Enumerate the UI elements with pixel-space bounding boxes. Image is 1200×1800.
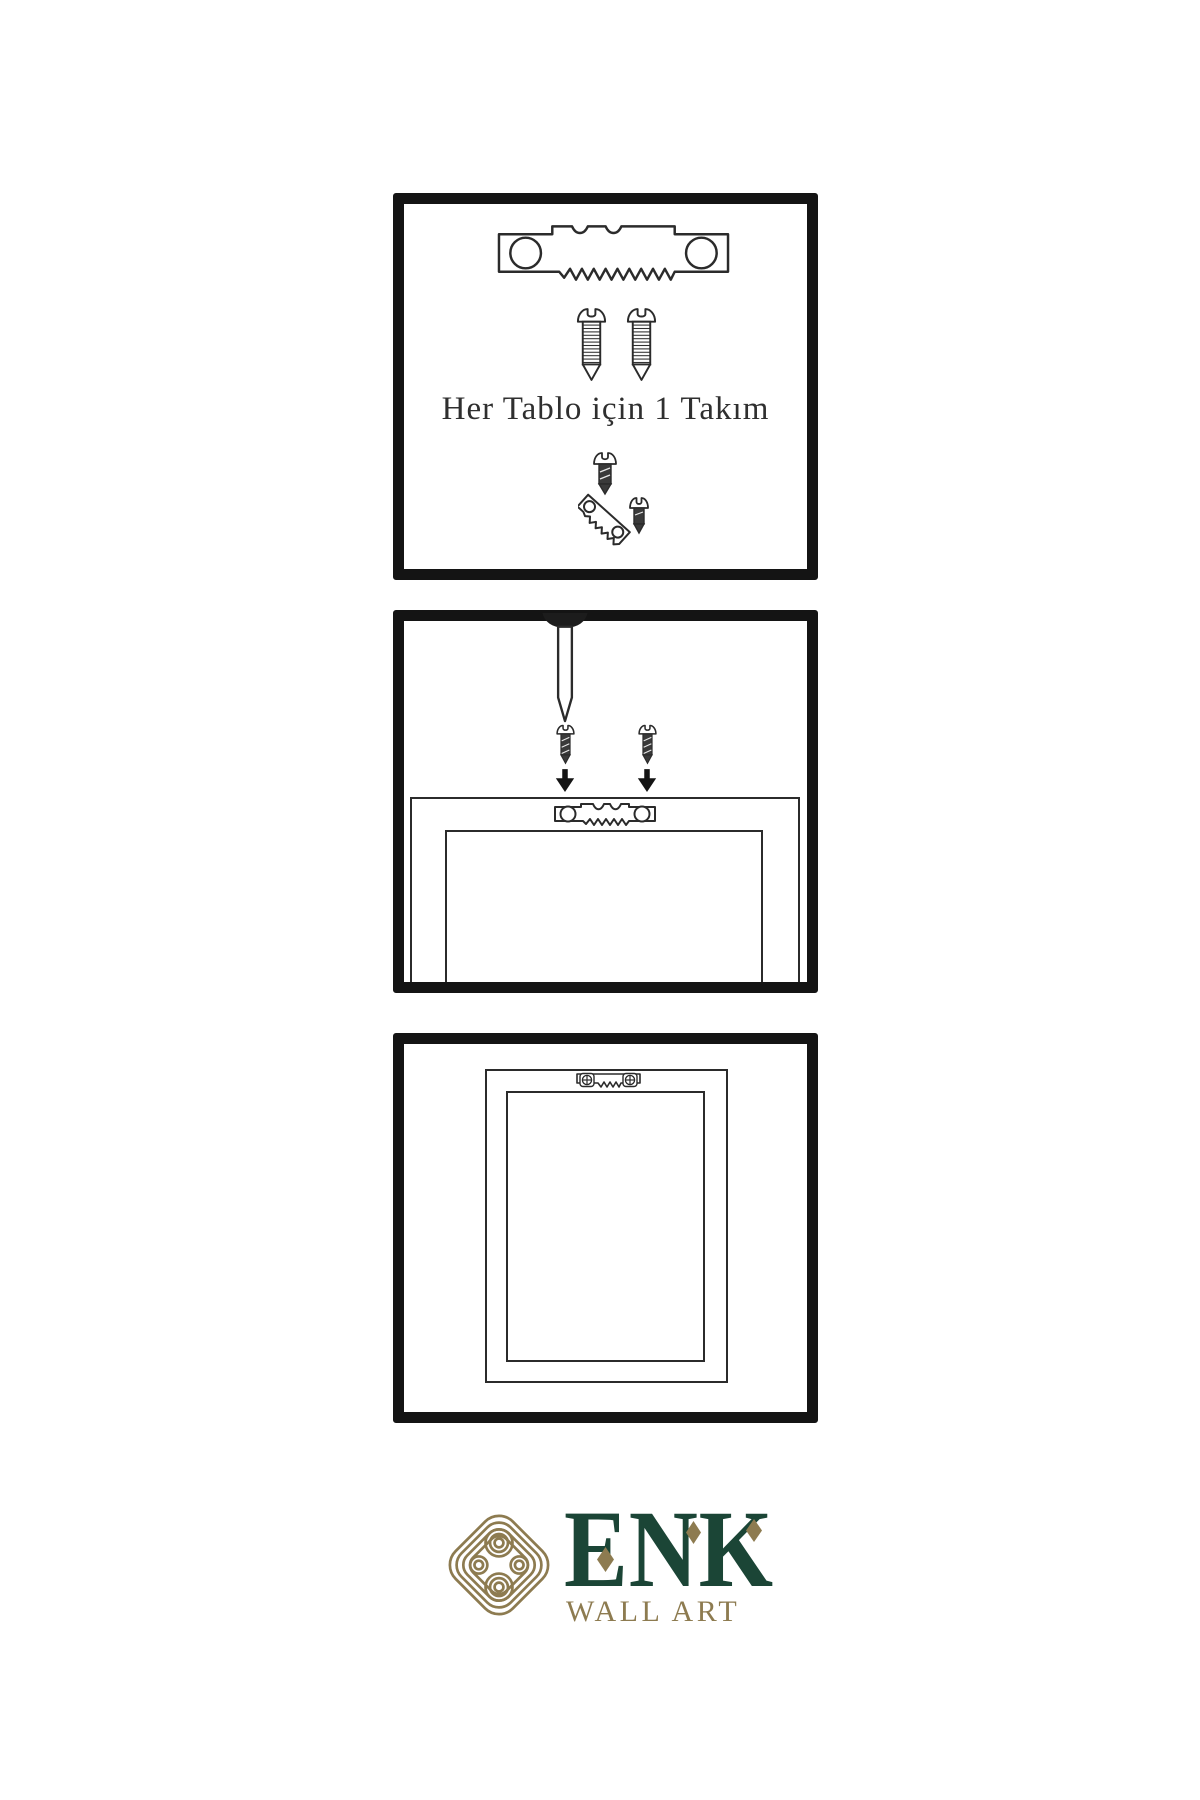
screw-icon <box>575 307 608 383</box>
hardware-kit-panel: Her Tablo için 1 Takım <box>393 193 818 580</box>
screw-icon <box>625 307 658 383</box>
nail-icon <box>540 613 590 725</box>
sawtooth-hanger-icon <box>553 802 657 826</box>
arrow-down-icon <box>554 769 576 793</box>
sawtooth-hanger-icon <box>497 223 730 283</box>
picture-frame-inner-edge <box>506 1091 705 1362</box>
dark-screw-icon <box>630 498 648 533</box>
mounted-sawtooth-hanger-icon <box>575 1072 642 1089</box>
hanging-result-panel <box>393 1033 818 1423</box>
dark-screw-icon <box>637 724 658 769</box>
arrow-down-icon <box>636 769 658 793</box>
wall-mounting-panel <box>393 610 818 993</box>
angled-sawtooth-hanger-icon <box>578 495 630 547</box>
brand-logo: ENK WALL ART <box>437 1498 797 1638</box>
kit-caption: Her Tablo için 1 Takım <box>404 393 807 426</box>
picture-frame-inner-edge <box>445 830 763 982</box>
dark-screw-icon <box>594 453 616 494</box>
dark-screw-icon <box>555 724 576 769</box>
brand-name: ENK <box>564 1494 774 1604</box>
hanger-assembly-icon <box>578 452 658 552</box>
brand-tagline: WALL ART <box>566 1597 740 1627</box>
interlaced-knot-icon <box>437 1500 561 1630</box>
instruction-sheet: Her Tablo için 1 Takım <box>0 0 1200 1800</box>
